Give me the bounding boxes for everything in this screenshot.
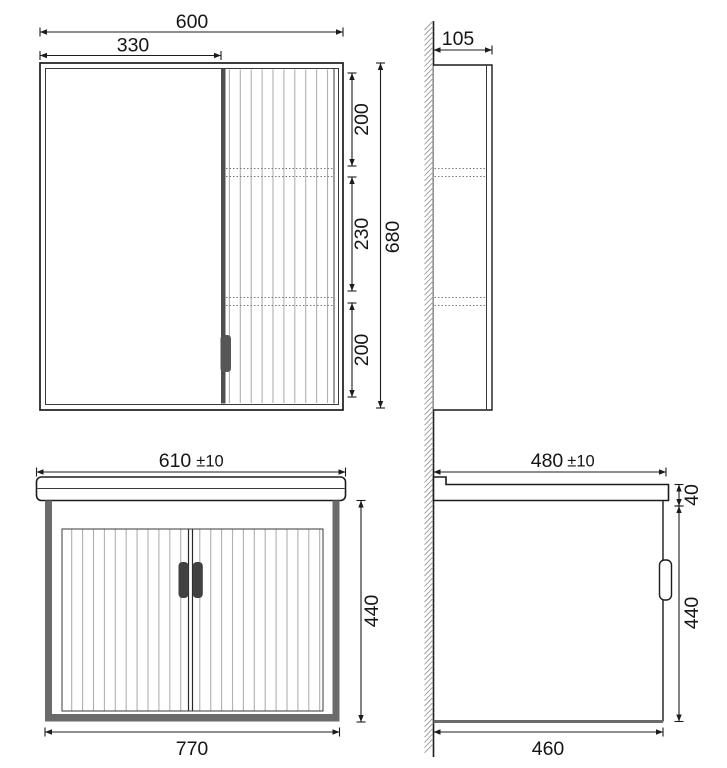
left-side-post — [45, 501, 52, 715]
countertop-profile — [434, 477, 669, 501]
door-handle — [221, 335, 232, 372]
bottom-rail — [45, 714, 340, 722]
dim-label-overall-height: 680 — [382, 221, 404, 254]
vanity-front-view — [37, 477, 346, 722]
right-side-post — [333, 501, 340, 715]
mirror-cabinet-front-view — [40, 63, 343, 410]
dim-label-shelf-middle: 230 — [351, 218, 373, 251]
dim-label-vanity-body-height: 440 — [681, 597, 703, 630]
vanity-side-view — [434, 477, 672, 722]
dim-label-countertop-height: 40 — [681, 484, 703, 506]
dim-label-shelf-top: 200 — [351, 103, 373, 136]
dim-label-vanity-top-width: 610 — [159, 450, 192, 472]
mirror-cabinet-side-view — [434, 65, 493, 410]
dim-label-vanity-bottom-width: 770 — [176, 738, 209, 760]
dim-label-shelf-bottom: 200 — [351, 334, 373, 367]
dim-label-vanity-depth: 480 — [531, 450, 564, 472]
dim-label-vanity-height: 440 — [361, 595, 383, 628]
left-door-handle — [179, 562, 189, 598]
wall-section — [425, 21, 434, 757]
furniture-dimension-drawing: 600 330 105 200 230 200 680 610 ±10 440 … — [0, 0, 727, 768]
side-door-handle — [660, 560, 672, 600]
dim-label-vanity-top-width-tolerance: ±10 — [196, 453, 223, 471]
technical-drawing-page: 600 330 105 200 230 200 680 610 ±10 440 … — [0, 0, 727, 768]
cabinet-side-outline — [434, 65, 493, 410]
right-door-handle — [193, 562, 203, 598]
dim-label-vanity-depth-tolerance: ±10 — [567, 453, 594, 471]
dim-label-cabinet-depth: 105 — [442, 28, 475, 50]
cabinet-outline — [40, 63, 343, 410]
dim-label-door-width: 330 — [117, 35, 150, 57]
dim-label-vanity-bottom-depth: 460 — [532, 738, 565, 760]
dim-label-overall-width: 600 — [176, 11, 209, 33]
wall-hatch-pattern — [425, 21, 434, 753]
